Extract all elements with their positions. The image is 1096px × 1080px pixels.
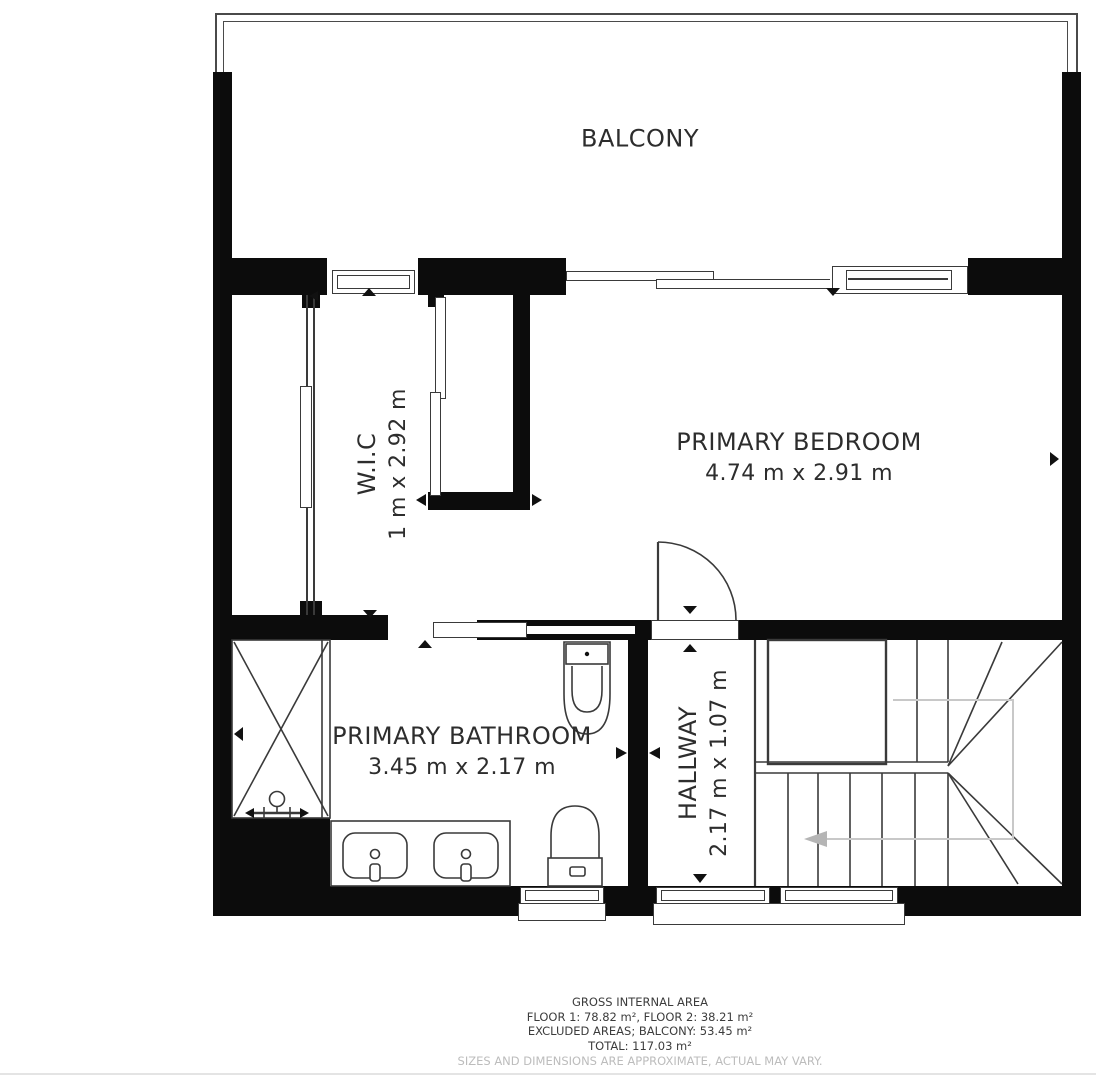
area-summary: GROSS INTERNAL AREA FLOOR 1: 78.82 m², F… [458, 995, 823, 1069]
label-wic: W.I.C 1 m x 2.92 m [352, 388, 414, 540]
excluded-areas: EXCLUDED AREAS; BALCONY: 53.45 m² [458, 1024, 823, 1039]
label-bedroom: PRIMARY BEDROOM 4.74 m x 2.91 m [676, 427, 922, 489]
page-bottom-divider [0, 1073, 1096, 1075]
bidet [548, 806, 602, 886]
wic-name: W.I.C [352, 388, 383, 540]
bedroom-door-swing [658, 542, 736, 620]
vanity-double-sink [331, 821, 510, 886]
balcony-name: BALCONY [581, 124, 699, 155]
total-area: TOTAL: 117.03 m² [458, 1039, 823, 1054]
bedroom-dimensions: 4.74 m x 2.91 m [676, 458, 922, 489]
gross-internal-area-title: GROSS INTERNAL AREA [458, 995, 823, 1010]
hallway-dimensions: 2.17 m x 1.07 m [704, 669, 735, 857]
disclaimer: SIZES AND DIMENSIONS ARE APPROXIMATE, AC… [458, 1054, 823, 1069]
line-art-layer [0, 0, 1096, 1080]
label-balcony: BALCONY [581, 124, 699, 155]
dimension-markers [234, 288, 1059, 883]
shower-enclosure [232, 640, 330, 818]
bedroom-name: PRIMARY BEDROOM [676, 427, 922, 458]
floor-plan: BALCONY W.I.C 1 m x 2.92 m PRIMARY BEDRO… [0, 0, 1096, 1080]
hallway-name: HALLWAY [673, 669, 704, 857]
wic-dimensions: 1 m x 2.92 m [383, 388, 414, 540]
bathroom-name: PRIMARY BATHROOM [332, 721, 592, 752]
shower-head-icon [245, 792, 309, 820]
label-bathroom: PRIMARY BATHROOM 3.45 m x 2.17 m [332, 721, 592, 783]
floor-areas: FLOOR 1: 78.82 m², FLOOR 2: 38.21 m² [458, 1010, 823, 1025]
label-hallway: HALLWAY 2.17 m x 1.07 m [673, 669, 735, 857]
bathroom-dimensions: 3.45 m x 2.17 m [332, 752, 592, 783]
staircase [755, 640, 1062, 886]
